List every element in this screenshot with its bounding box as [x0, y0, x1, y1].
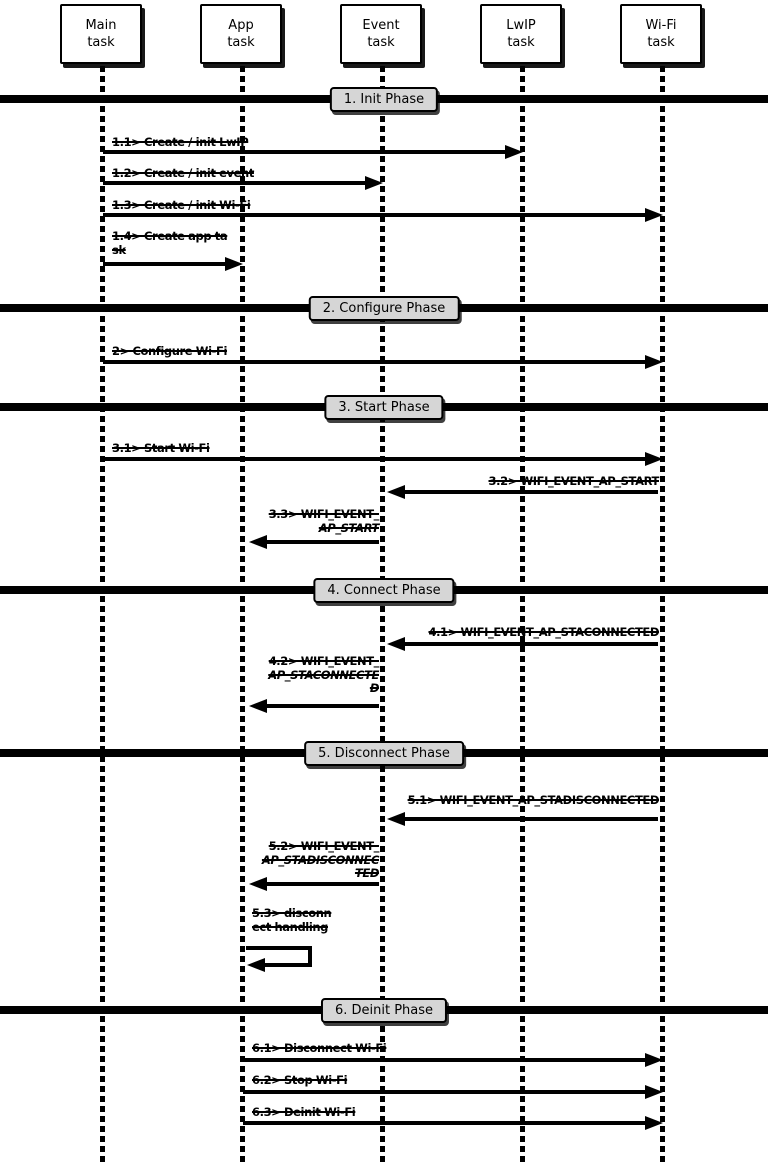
message-line: [243, 1121, 646, 1125]
message-line: [243, 1058, 646, 1062]
arrowhead: [645, 355, 663, 369]
message-line: [103, 150, 506, 154]
message-line: [404, 490, 658, 494]
message-line: [404, 642, 658, 646]
message-label: 3.3> WIFI_EVENT_ AP_START: [269, 508, 379, 535]
phase-label-configure: 2. Configure Phase: [309, 296, 460, 321]
phase-label-disconnect: 5. Disconnect Phase: [304, 741, 464, 766]
arrowhead: [387, 485, 405, 499]
message-label: 1.4> Create app ta sk: [112, 230, 227, 257]
actor-label: LwIP: [506, 17, 536, 34]
actor-label: App: [228, 17, 253, 34]
actor-box-event-task: Event task: [340, 4, 422, 64]
phase-label-deinit: 6. Deinit Phase: [321, 998, 447, 1023]
arrowhead: [645, 208, 663, 222]
message-label: 1.1> Create / init LwIP: [112, 136, 248, 150]
message-line: [103, 181, 366, 185]
message-line: [103, 457, 646, 461]
actor-label: task: [87, 34, 114, 51]
actor-label: task: [227, 34, 254, 51]
lifeline-main-task: [100, 66, 105, 1164]
message-label: 4.1> WIFI_EVENT_AP_STACONNECTED: [428, 626, 659, 640]
message-line: [266, 882, 379, 886]
lifeline-wifi-task: [660, 66, 665, 1164]
arrowhead: [247, 958, 265, 972]
arrowhead: [505, 145, 523, 159]
message-label: 4.2> WIFI_EVENT_ AP_STACONNECTE D: [268, 655, 379, 696]
self-message-top-line: [246, 946, 312, 950]
arrowhead: [645, 1085, 663, 1099]
message-label: 1.3> Create / init Wi-Fi: [112, 199, 250, 213]
lifeline-lwip-task: [520, 66, 525, 1164]
arrowhead: [645, 1053, 663, 1067]
actor-box-main-task: Main task: [60, 4, 142, 64]
actor-label: task: [507, 34, 534, 51]
message-label: 6.2> Stop Wi-Fi: [252, 1074, 347, 1088]
arrowhead: [225, 257, 243, 271]
arrowhead: [387, 637, 405, 651]
arrowhead: [249, 699, 267, 713]
actor-label: Main: [85, 17, 116, 34]
actor-box-wifi-task: Wi-Fi task: [620, 4, 702, 64]
arrowhead: [249, 877, 267, 891]
message-label: 3.1> Start Wi-Fi: [112, 442, 210, 456]
message-line: [243, 1090, 646, 1094]
message-label: 5.2> WIFI_EVENT_ AP_STADISCONNEC TED: [262, 840, 379, 881]
self-message-bottom-line: [263, 963, 312, 967]
message-label: 2> Configure Wi-Fi: [112, 345, 227, 359]
message-label: 3.2> WIFI_EVENT_AP_START: [489, 475, 660, 489]
arrowhead: [645, 452, 663, 466]
actor-label: task: [367, 34, 394, 51]
message-label: 6.1> Disconnect Wi-Fi: [252, 1042, 386, 1056]
arrowhead: [645, 1116, 663, 1130]
message-line: [404, 817, 658, 821]
arrowhead: [387, 812, 405, 826]
message-label: 5.1> WIFI_EVENT_AP_STADISCONNECTED: [408, 794, 659, 808]
actor-label: Wi-Fi: [645, 17, 676, 34]
arrowhead: [365, 176, 383, 190]
actor-box-app-task: App task: [200, 4, 282, 64]
message-label: 6.3> Deinit Wi-Fi: [252, 1106, 355, 1120]
phase-label-start: 3. Start Phase: [324, 395, 443, 420]
actor-box-lwip-task: LwIP task: [480, 4, 562, 64]
message-line: [266, 704, 379, 708]
message-label: 1.2> Create / init event: [112, 167, 254, 181]
arrowhead: [249, 535, 267, 549]
actor-label: Event: [362, 17, 399, 34]
lifeline-app-task: [240, 66, 245, 1164]
phase-label-connect: 4. Connect Phase: [313, 578, 454, 603]
message-line: [103, 262, 226, 266]
message-line: [266, 540, 379, 544]
phase-label-init: 1. Init Phase: [330, 87, 438, 112]
message-line: [103, 213, 646, 217]
actor-label: task: [647, 34, 674, 51]
message-label: 5.3> disconn ect handling: [252, 907, 331, 934]
message-line: [103, 360, 646, 364]
sequence-diagram: Main task App task Event task LwIP task …: [0, 0, 768, 1164]
